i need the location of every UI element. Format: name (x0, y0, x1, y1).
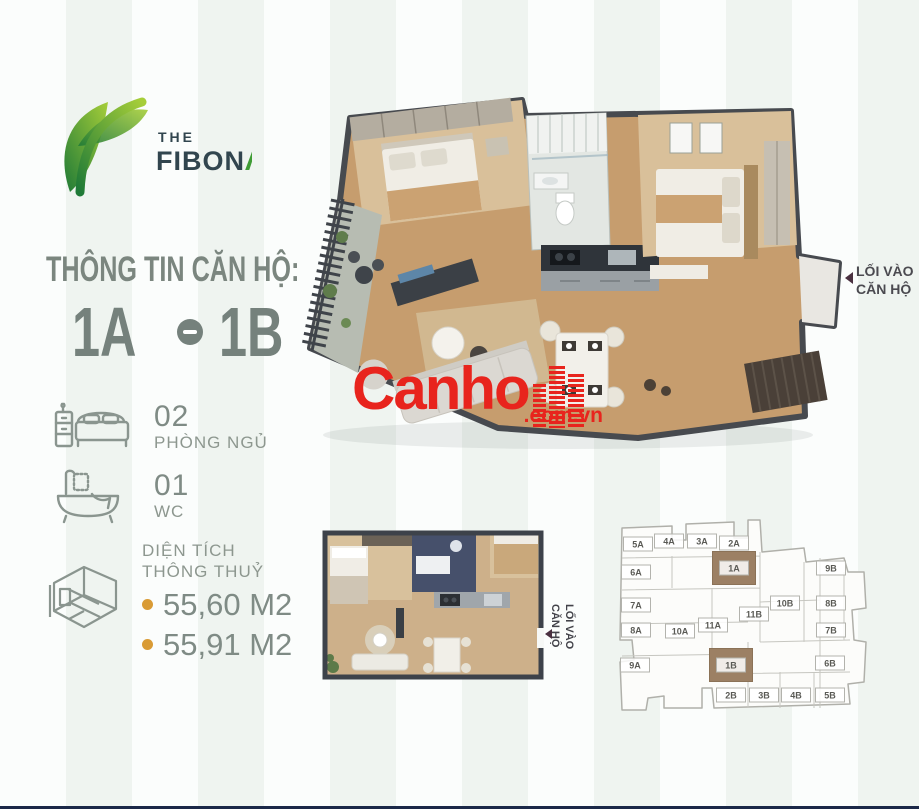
spec-wc: 01 WC (52, 466, 189, 526)
key-plan-unit-6A: 6A (621, 565, 651, 580)
key-plan-units: 5A4A3A2A6A1A9B7A10B8B11B8A10A11A7B9A1B6B… (608, 512, 878, 722)
key-plan-unit-11B: 11B (739, 607, 769, 622)
plan2d-door-gap (537, 628, 544, 648)
key-plan-unit-4B: 4B (781, 688, 811, 703)
bathtub-icon (52, 466, 136, 526)
key-plan-unit-1A: 1A (719, 561, 749, 576)
bed-icon (52, 398, 136, 456)
key-plan-unit-6B: 6B (815, 656, 845, 671)
kitchen (541, 245, 659, 291)
entrance-label-2d: LỐI VÀO CĂN HỘ (548, 604, 576, 649)
key-plan-unit-10A: 10A (665, 624, 695, 639)
svg-text:THE: THE (158, 129, 195, 145)
minus-icon (177, 319, 203, 345)
unit-code-1b: 1B (219, 292, 283, 372)
key-plan-unit-1B: 1B (716, 658, 746, 673)
bathroom (526, 113, 610, 250)
key-plan-unit-9B: 9B (816, 561, 846, 576)
entrance-arrow-icon (845, 272, 853, 284)
key-plan-unit-7B: 7B (816, 623, 846, 638)
brand-logo: THE FIBONΛN (42, 90, 252, 208)
bullet-icon (142, 639, 153, 650)
bedroom-count: 02 (154, 401, 268, 433)
key-plan-unit-5A: 5A (623, 537, 653, 552)
key-plan: 5A4A3A2A6A1A9B7A10B8B11B8A10A11A7B9A1B6B… (608, 512, 878, 722)
poster: THE FIBONΛN THÔNG TIN CĂN HỘ: 1A 1B 02 P… (0, 0, 919, 809)
bedroom-label: PHÒNG NGỦ (154, 433, 268, 453)
key-plan-unit-2B: 2B (716, 688, 746, 703)
area-label: DIỆN TÍCH THÔNG THUỶ (142, 540, 292, 583)
entrance-label-3d: LỐI VÀO CĂN HỘ (856, 262, 914, 298)
unit-codes: 1A 1B (72, 292, 309, 372)
wc-count: 01 (154, 470, 189, 502)
key-plan-unit-7A: 7A (621, 598, 651, 613)
key-plan-unit-5B: 5B (815, 688, 845, 703)
watermark-suffix: .com.vn (524, 404, 603, 428)
key-plan-unit-8A: 8A (621, 623, 651, 638)
key-plan-unit-11A: 11A (698, 618, 728, 633)
key-plan-unit-8B: 8B (816, 596, 846, 611)
key-plan-unit-3A: 3A (687, 534, 717, 549)
wc-label: WC (154, 502, 189, 522)
bullet-icon (142, 599, 153, 610)
fibonan-leaf-icon: THE FIBONΛN (42, 90, 252, 208)
key-plan-unit-10B: 10B (770, 596, 800, 611)
key-plan-unit-9A: 9A (620, 658, 650, 673)
bedroom-1 (350, 98, 534, 227)
watermark-text: Canho (352, 362, 529, 416)
unit-code-1a: 1A (72, 292, 136, 372)
watermark: Canho .com.vn (352, 362, 603, 428)
room-cube-icon (44, 561, 124, 641)
spec-area: DIỆN TÍCH THÔNG THUỶ 55,60 M2 55,91 M2 (44, 540, 292, 663)
area-value-row: 55,91 M2 (142, 627, 292, 663)
key-plan-unit-4A: 4A (654, 534, 684, 549)
floorplan-2d (322, 530, 544, 680)
key-plan-unit-2A: 2A (719, 536, 749, 551)
area-value-row: 55,60 M2 (142, 587, 292, 623)
svg-text:FIBONΛN: FIBONΛN (156, 146, 252, 176)
spec-bedrooms: 02 PHÒNG NGỦ (52, 398, 268, 456)
key-plan-unit-3B: 3B (749, 688, 779, 703)
